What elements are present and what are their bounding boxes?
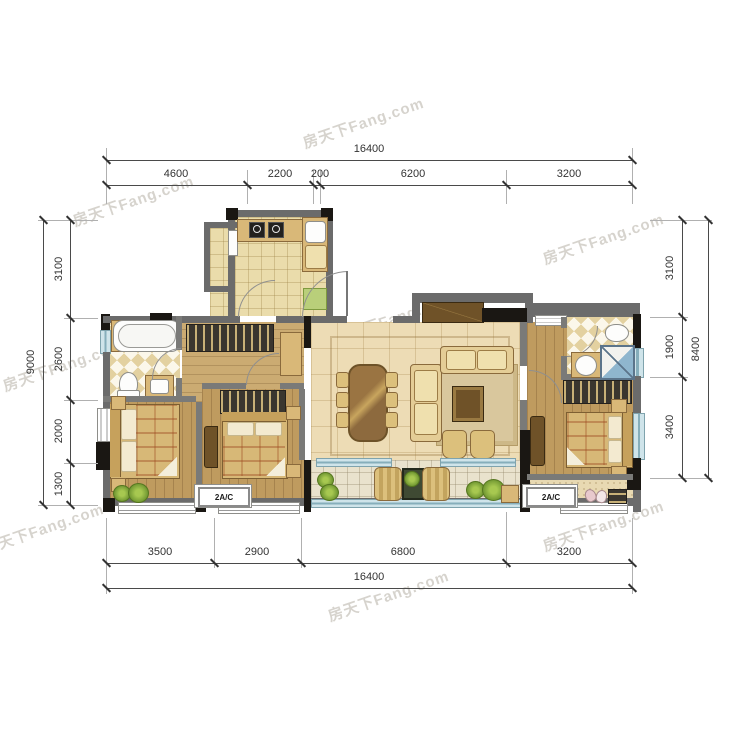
wall-top bbox=[276, 316, 347, 323]
hall-cabinet bbox=[280, 332, 302, 376]
dim-left-seg: 1300 bbox=[53, 472, 65, 496]
bed-right-pillow bbox=[608, 416, 622, 439]
nightstand bbox=[111, 396, 126, 410]
kitchen-basin bbox=[305, 245, 327, 269]
wall-bedroom-middle-right bbox=[299, 389, 305, 460]
dim-top-seg: 3200 bbox=[557, 168, 581, 180]
extension-line bbox=[632, 518, 633, 594]
coffee-table bbox=[452, 386, 484, 422]
column bbox=[520, 430, 530, 490]
column bbox=[96, 442, 110, 470]
bed-left-pillow bbox=[121, 441, 137, 472]
bed-right-fold bbox=[567, 447, 585, 465]
window-bedroom-left-bay bbox=[97, 408, 111, 442]
shower-stall bbox=[600, 345, 635, 380]
dim-right-total: 8400 bbox=[690, 337, 702, 361]
doormat bbox=[608, 489, 627, 504]
bed-left-fold bbox=[157, 457, 177, 476]
dining-table bbox=[348, 364, 388, 442]
bed-middle-headboard bbox=[222, 412, 286, 422]
dim-bottom-total: 16400 bbox=[354, 571, 385, 583]
tv-console bbox=[422, 302, 484, 323]
dim-top-seg: 2200 bbox=[268, 168, 292, 180]
wall-bedroom-middle-top bbox=[202, 383, 246, 389]
extension-line bbox=[38, 220, 98, 221]
wall-service-balcony bbox=[204, 222, 210, 292]
window-bathroom-left bbox=[100, 330, 111, 354]
balcony-chair bbox=[422, 467, 450, 501]
balcony-side-table bbox=[501, 485, 519, 503]
ac-unit-label-right: 2A/C bbox=[526, 487, 576, 507]
wall-service-balcony bbox=[204, 286, 230, 292]
balcony-inner-glass bbox=[440, 458, 516, 467]
bed-left-pillow bbox=[121, 409, 137, 440]
bed-middle-pillow bbox=[227, 422, 254, 436]
dining-chair bbox=[385, 392, 398, 408]
dining-chair bbox=[385, 412, 398, 428]
kitchen-sink bbox=[305, 221, 326, 243]
sofa-cushion bbox=[477, 350, 507, 370]
dining-chair bbox=[336, 372, 349, 388]
column bbox=[103, 498, 115, 512]
column bbox=[633, 314, 641, 348]
dim-left-seg: 2600 bbox=[53, 347, 65, 371]
nightstand bbox=[286, 406, 301, 420]
wall-living-right bbox=[520, 322, 527, 366]
ac-unit-label-left-text: 2A/C bbox=[215, 493, 233, 502]
dim-left-seg: 2000 bbox=[53, 419, 65, 443]
dim-top-seg: 4600 bbox=[164, 168, 188, 180]
wall-right bbox=[633, 376, 641, 413]
dimension-line-right-total bbox=[708, 220, 709, 478]
sofa-cushion bbox=[446, 350, 476, 370]
balcony-planter-plant bbox=[404, 471, 420, 487]
wall-top bbox=[393, 316, 412, 323]
bed-middle-pillow bbox=[255, 422, 282, 436]
bed-middle-fold bbox=[266, 457, 285, 476]
wardrobe-bedroom-middle bbox=[220, 390, 286, 414]
nightstand bbox=[286, 464, 301, 478]
dimension-line-top-total bbox=[106, 160, 633, 161]
toilet-right bbox=[605, 324, 629, 342]
tv-bench-right bbox=[530, 416, 545, 466]
sofa-cushion bbox=[414, 370, 438, 402]
vanity-left-basin bbox=[150, 379, 169, 394]
wall-bathroom-left-side bbox=[176, 316, 182, 350]
dim-left-total: 9000 bbox=[25, 350, 37, 374]
window-bedroom-left-bottom bbox=[118, 502, 196, 514]
extension-line bbox=[106, 148, 107, 204]
entry-door-leaf bbox=[346, 271, 348, 316]
ac-unit-label-left: 2A/C bbox=[198, 487, 250, 507]
window-bedroom-right bbox=[633, 413, 645, 460]
extension-line bbox=[506, 512, 507, 568]
column bbox=[304, 316, 311, 348]
dining-chair bbox=[336, 412, 349, 428]
dim-top-total: 16400 bbox=[354, 143, 385, 155]
column bbox=[304, 460, 311, 512]
floorplan-canvas: 房天下Fang.com 房天下Fang.com 房天下Fang.com 房天下F… bbox=[0, 0, 750, 750]
extension-line bbox=[632, 148, 633, 204]
wardrobe-corridor bbox=[186, 324, 274, 352]
dimension-line-bottom-segments bbox=[106, 563, 633, 564]
dim-left-seg: 3100 bbox=[53, 257, 65, 281]
stove-burner bbox=[268, 222, 284, 238]
bed-left-headboard bbox=[110, 404, 121, 477]
dim-right-seg: 3400 bbox=[664, 415, 676, 439]
watermark-text: 房天下Fang.com bbox=[325, 565, 452, 626]
dim-bottom-seg: 3500 bbox=[148, 546, 172, 558]
dim-bottom-seg: 2900 bbox=[245, 546, 269, 558]
dim-top-seg: 6200 bbox=[401, 168, 425, 180]
extension-line bbox=[106, 518, 107, 594]
dresser-bedroom-middle bbox=[204, 426, 218, 468]
bed-right-pillow bbox=[608, 440, 622, 463]
dim-right-seg: 1900 bbox=[664, 335, 676, 359]
dimension-line-top-segments bbox=[106, 185, 633, 186]
column bbox=[482, 308, 527, 322]
nightstand bbox=[611, 399, 627, 413]
dining-chair bbox=[336, 392, 349, 408]
watermark-text: 房天下Fang.com bbox=[0, 498, 107, 559]
sofa-cushion bbox=[414, 403, 438, 435]
plant-bedroom-left bbox=[128, 483, 149, 503]
dimension-line-bottom-total bbox=[106, 588, 633, 589]
dimension-line-left-total bbox=[43, 220, 44, 505]
dim-bottom-seg: 3200 bbox=[557, 546, 581, 558]
dim-right-seg: 3100 bbox=[664, 256, 676, 280]
dining-chair bbox=[385, 372, 398, 388]
dim-bottom-seg: 6800 bbox=[391, 546, 415, 558]
bed-right-headboard bbox=[622, 412, 632, 466]
bathtub-basin bbox=[118, 324, 176, 348]
dim-top-seg: 200 bbox=[311, 168, 329, 180]
dimension-line-right-segments bbox=[682, 220, 683, 478]
wall-niche bbox=[412, 293, 420, 323]
watermark-text: 房天下Fang.com bbox=[540, 208, 667, 269]
stove-burner bbox=[249, 222, 265, 238]
balcony-chair bbox=[374, 467, 402, 501]
wall-bedroom-right-bottom bbox=[527, 474, 633, 480]
wall-kitchen-top bbox=[228, 210, 333, 217]
sink-right bbox=[575, 355, 597, 376]
balcony-shrub bbox=[320, 484, 339, 501]
armchair bbox=[470, 430, 495, 459]
balcony-inner-glass bbox=[316, 458, 392, 467]
armchair bbox=[442, 430, 467, 459]
extension-line bbox=[38, 505, 98, 506]
ac-unit-label-right-text: 2A/C bbox=[542, 493, 560, 502]
